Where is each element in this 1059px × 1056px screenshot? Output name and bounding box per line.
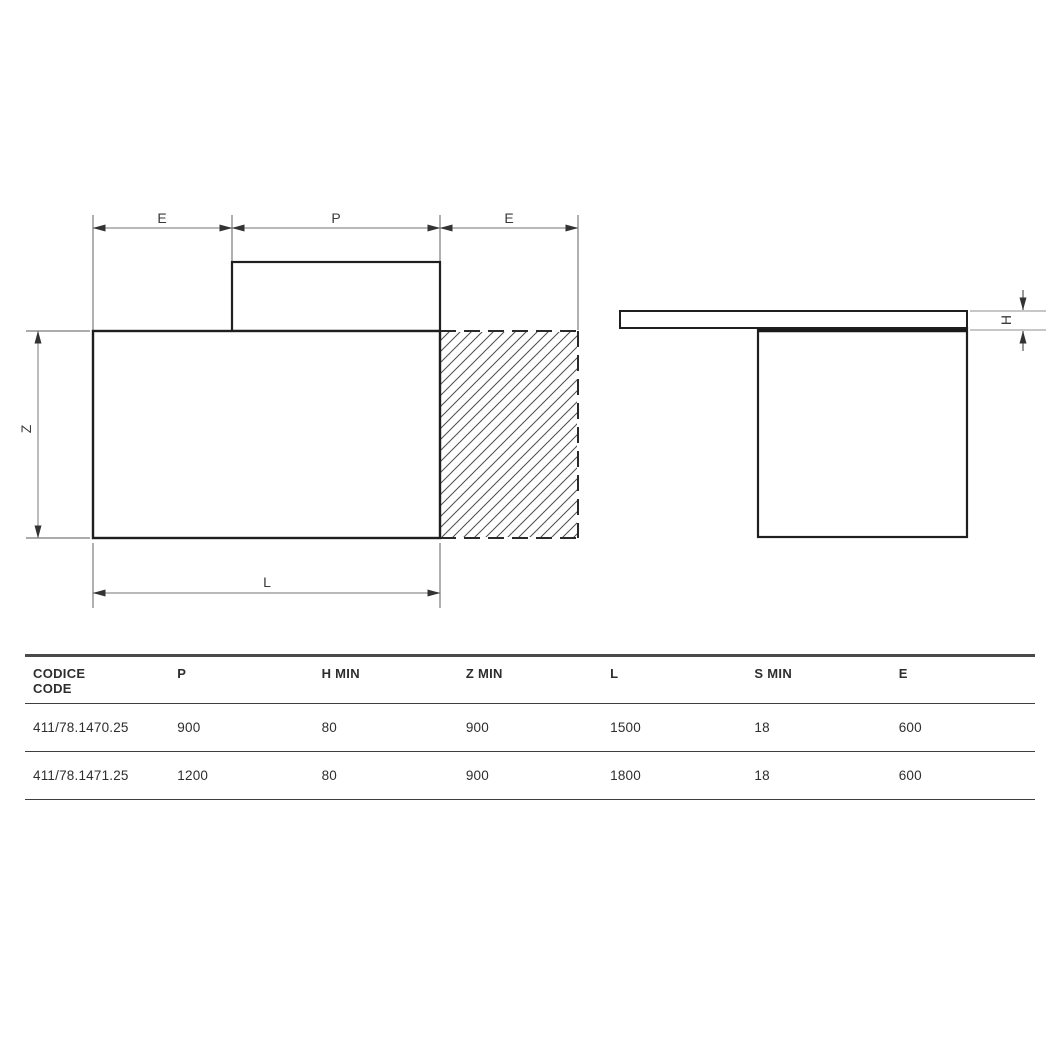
col-header-e: E bbox=[891, 657, 1035, 703]
cell-l: 1800 bbox=[602, 768, 746, 783]
table-row: 411/78.1470.25 900 80 900 1500 18 600 bbox=[25, 704, 1035, 751]
worktop-slab bbox=[620, 311, 967, 328]
dim-label-e-left: E bbox=[157, 210, 166, 226]
hob-block bbox=[232, 262, 440, 331]
cell-z-min: 900 bbox=[458, 720, 602, 735]
dim-label-e-right: E bbox=[504, 210, 513, 226]
cell-h-min: 80 bbox=[314, 768, 458, 783]
spec-table: CODICE CODE P H MIN Z MIN L S MIN E 411/… bbox=[25, 654, 1035, 800]
spec-sheet: E P E bbox=[0, 0, 1059, 1056]
cell-p: 900 bbox=[169, 720, 313, 735]
col-header-l: L bbox=[602, 657, 746, 703]
col-header-codice: CODICE CODE bbox=[25, 657, 169, 703]
table-row: 411/78.1471.25 1200 80 900 1800 18 600 bbox=[25, 751, 1035, 799]
cell-h-min: 80 bbox=[314, 720, 458, 735]
cell-s-min: 18 bbox=[746, 720, 890, 735]
cell-code: 411/78.1471.25 bbox=[25, 768, 169, 783]
z-dimension: Z bbox=[18, 331, 90, 538]
cell-p: 1200 bbox=[169, 768, 313, 783]
technical-drawing: E P E bbox=[0, 0, 1059, 630]
col-header-p: P bbox=[169, 657, 313, 703]
col-header-h-min: H MIN bbox=[314, 657, 458, 703]
cell-s-min: 18 bbox=[746, 768, 890, 783]
col-header-s-min: S MIN bbox=[746, 657, 890, 703]
cell-code: 411/78.1470.25 bbox=[25, 720, 169, 735]
plan-view: E P E bbox=[18, 210, 578, 608]
dim-label-z: Z bbox=[18, 424, 34, 433]
table-header-row: CODICE CODE P H MIN Z MIN L S MIN E bbox=[25, 657, 1035, 704]
dim-label-l: L bbox=[263, 574, 271, 590]
cell-l: 1500 bbox=[602, 720, 746, 735]
hatched-area bbox=[440, 331, 578, 538]
cell-e: 600 bbox=[891, 720, 1035, 735]
dim-label-p: P bbox=[331, 210, 340, 226]
cell-z-min: 900 bbox=[458, 768, 602, 783]
cabinet-body bbox=[758, 328, 967, 537]
l-dimension: L bbox=[93, 543, 440, 608]
side-view: H bbox=[620, 290, 1046, 537]
cell-e: 600 bbox=[891, 768, 1035, 783]
col-header-z-min: Z MIN bbox=[458, 657, 602, 703]
h-dimension: H bbox=[970, 290, 1046, 351]
worktop-body bbox=[93, 331, 440, 538]
dim-label-h: H bbox=[998, 315, 1014, 325]
